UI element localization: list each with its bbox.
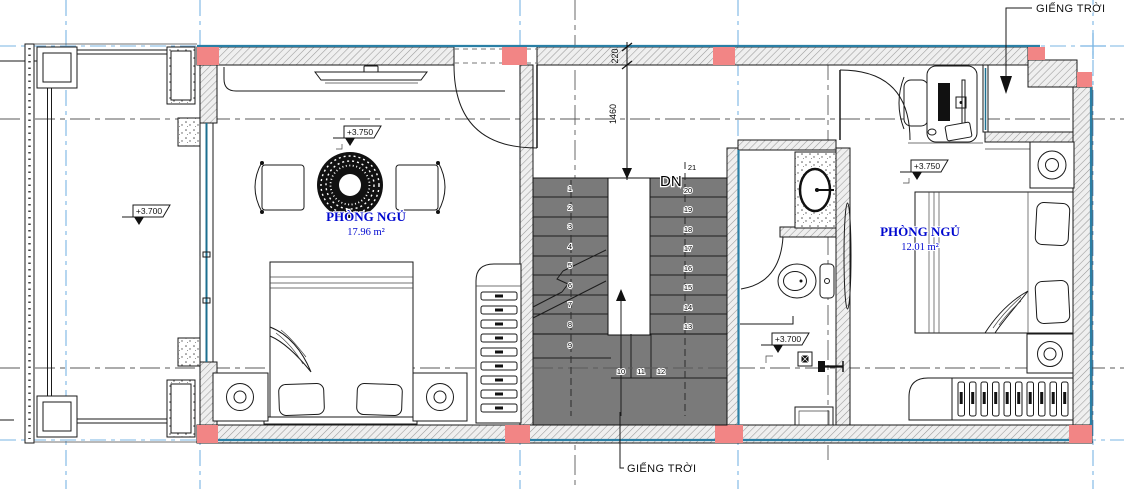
stair-east-wall (727, 148, 738, 425)
step-number: 14 (684, 303, 692, 312)
step-number: 20 (684, 186, 692, 195)
room-area: 17.96 m² (347, 227, 385, 238)
step-number: 19 (684, 205, 692, 214)
level-flag-bedroom-left: +3.750 (333, 126, 381, 149)
level-value: +3.700 (775, 334, 802, 344)
level-flag-bedroom-right: +3.750 (900, 160, 948, 183)
wardrobe (476, 264, 521, 423)
balcony-railing (48, 50, 168, 423)
room-name: PHÒNG NGỦ (326, 209, 406, 224)
stair-landing (533, 334, 727, 425)
staircase: 1 2 3 4 5 6 7 8 9 10 11 12 13 14 15 16 1… (533, 162, 727, 425)
low-wall (795, 407, 833, 425)
level-value: +3.700 (136, 206, 163, 216)
balcony (25, 44, 200, 443)
bathroom (740, 152, 851, 425)
pillow (356, 383, 402, 416)
skylight-ledge (985, 132, 1073, 142)
tv (315, 66, 427, 83)
step-number: 7 (568, 300, 572, 309)
floor-drain (798, 352, 812, 366)
step-number: 3 (568, 222, 572, 231)
level-value: +3.750 (347, 127, 374, 137)
wall-box-upper (178, 118, 200, 146)
bathroom-door-swing (741, 237, 783, 289)
step-number: 13 (684, 322, 692, 331)
sink (795, 152, 836, 228)
dimension-220: 220 (610, 48, 620, 63)
bed (264, 262, 417, 424)
bed-2 (915, 192, 1073, 333)
right-wall (1073, 87, 1092, 425)
room-name: PHÒNG NGỦ (880, 224, 960, 239)
shower-partition (740, 316, 793, 324)
step-number: 15 (684, 283, 692, 292)
top-wall-left (197, 47, 454, 65)
skylight-label-bottom: GIẾNG TRỜI (627, 462, 696, 475)
column (502, 47, 527, 65)
level-flag-bathroom: +3.700 (761, 333, 809, 353)
stair-down-label: DN (660, 173, 682, 190)
pillow (1035, 280, 1070, 324)
dimension-1460: 1460 (608, 104, 618, 124)
bath-north-wall (738, 140, 836, 150)
column (1077, 72, 1092, 87)
step-number: 5 (568, 261, 572, 270)
planter-bottom (167, 380, 195, 437)
column (197, 47, 219, 65)
column (1069, 425, 1092, 443)
step-number: 16 (684, 264, 692, 273)
balcony-column-bottom (37, 396, 77, 437)
floor-plan-drawing: 1 2 3 4 5 6 7 8 9 10 11 12 13 14 15 16 1… (0, 0, 1124, 489)
corner-tick (766, 356, 773, 363)
step-number: 11 (637, 367, 645, 376)
room-area: 12.01 m² (901, 242, 939, 253)
step-number: 1 (568, 184, 572, 193)
wall-box-lower (178, 338, 200, 366)
nightstand-bottom (1027, 334, 1073, 373)
level-value: +3.750 (914, 161, 941, 171)
level-flag-balcony: +3.700 (122, 205, 170, 225)
pillow (1035, 202, 1070, 246)
step-number: 21 (688, 163, 696, 172)
column (197, 425, 218, 443)
nightstand-top (1030, 142, 1074, 188)
planter-top (167, 47, 195, 104)
chair-right (396, 161, 445, 214)
bath-east-wall (836, 148, 850, 425)
chair-left (255, 161, 304, 214)
balcony-column-top (37, 47, 77, 88)
step-number: 9 (568, 341, 572, 350)
desk (927, 66, 977, 142)
stair-void (608, 178, 650, 335)
window-balcony (200, 123, 213, 362)
step-number: 17 (684, 244, 692, 253)
skylight-label-top: GIẾNG TRỜI (1036, 2, 1105, 15)
top-wall-step (1028, 60, 1077, 87)
west-wall-upper (200, 65, 217, 123)
step-number: 4 (568, 242, 572, 251)
computer-monitor (938, 83, 950, 121)
nightstand-left (213, 373, 268, 421)
step-number: 2 (568, 203, 572, 212)
pillow (278, 383, 324, 416)
toilet (778, 264, 834, 298)
step-number: 8 (568, 320, 572, 329)
column (505, 425, 530, 443)
column (715, 425, 743, 443)
column (713, 47, 735, 65)
column (1028, 47, 1045, 60)
step-number: 10 (617, 367, 625, 376)
room-label-bedroom-left: PHÒNG NGỦ 17.96 m² (326, 209, 406, 238)
stair-west-wall (520, 65, 533, 425)
floor-plan-canvas: 1 2 3 4 5 6 7 8 9 10 11 12 13 14 15 16 1… (0, 0, 1124, 489)
step-number: 12 (657, 367, 665, 376)
wardrobe-2 (909, 378, 1073, 420)
step-number: 18 (684, 225, 692, 234)
skylight-window (983, 65, 988, 132)
bed-footboard (264, 417, 417, 424)
corner-cabinet (909, 378, 952, 420)
nightstand-right (413, 373, 467, 421)
step-number: 6 (568, 281, 572, 290)
